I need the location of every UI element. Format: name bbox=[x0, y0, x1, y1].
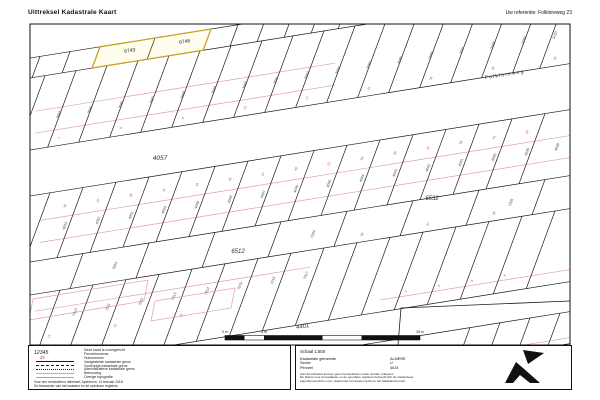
parcel-number-label: 3686 bbox=[118, 100, 125, 109]
parcel-boundary-line bbox=[230, 25, 238, 46]
info-field-value: 4024 bbox=[390, 366, 398, 370]
house-number-label: 57 bbox=[426, 145, 431, 150]
house-number-label: 45 bbox=[228, 177, 233, 182]
parcel-number-label: 3697 bbox=[459, 46, 466, 55]
parcel-boundary-line bbox=[48, 71, 76, 148]
parcel-number-label-large: 6512 bbox=[231, 249, 245, 255]
street-name-label: Folkloreweg bbox=[485, 69, 526, 81]
parcel-boundary-line bbox=[460, 222, 489, 300]
house-number-label: 14 bbox=[47, 334, 52, 339]
parcel-boundary-line bbox=[547, 313, 560, 347]
house-number-label: 47 bbox=[261, 172, 266, 177]
parcel-number-label: 3695 bbox=[397, 56, 404, 65]
parcel-boundary-line bbox=[268, 222, 281, 257]
parcel-boundary-line bbox=[255, 156, 281, 226]
parcel-number-label: 7012 bbox=[138, 297, 145, 306]
scale-bar-segment bbox=[264, 336, 323, 341]
parcel-number-label: 3684 bbox=[56, 110, 63, 119]
legend-line-sample bbox=[36, 373, 74, 374]
parcel-boundary-line bbox=[172, 51, 200, 128]
parcel-boundary-line bbox=[32, 56, 40, 77]
house-number-label: 65 bbox=[360, 232, 365, 237]
building-outline-line bbox=[380, 270, 570, 300]
house-number-label: 55 bbox=[393, 150, 398, 155]
parcel-boundary-line bbox=[288, 151, 314, 221]
highlighted-parcel-outline bbox=[92, 29, 211, 68]
parcel-boundary-line bbox=[420, 11, 448, 88]
legend-line-sample bbox=[36, 361, 74, 362]
building-outline-line bbox=[40, 158, 570, 243]
parcel-number-label: 7004 bbox=[310, 230, 317, 239]
parcel-boundary-line bbox=[365, 3, 373, 24]
parcel-boundary-line bbox=[473, 0, 481, 7]
parcel-number-label: 7014 bbox=[204, 287, 211, 296]
parcel-boundary-line bbox=[446, 0, 454, 11]
parcel-boundary-line bbox=[453, 124, 479, 194]
legend-box: Deze kaart is noordgericht12345Perceelnu… bbox=[28, 345, 291, 390]
parcel-number-label: 3698 bbox=[490, 41, 497, 50]
parcel-boundary-line bbox=[361, 237, 390, 315]
parcel-number-label: 3685 bbox=[87, 105, 94, 114]
disclaimer-line: eigendomsrechten voor, waaronder het aut… bbox=[300, 380, 505, 384]
parcel-number-label: 7003 bbox=[112, 261, 119, 270]
parcel-boundary-line bbox=[24, 193, 50, 263]
parcel-number-label: 7016 bbox=[270, 276, 277, 285]
legend-line-sample bbox=[36, 369, 74, 370]
parcel-number-label: 3687 bbox=[149, 95, 156, 104]
parcel-boundary-line bbox=[493, 216, 522, 294]
parcel-boundary-line bbox=[451, 6, 479, 83]
parcel-boundary-line bbox=[486, 119, 512, 189]
parcel-boundary-line bbox=[262, 253, 291, 331]
parcel-boundary-line bbox=[328, 243, 357, 321]
house-number-label: 67 bbox=[426, 221, 431, 226]
parcel-boundary-line bbox=[136, 243, 149, 278]
parcel-number-label: 7015 bbox=[237, 281, 244, 290]
building-outline-line bbox=[35, 267, 310, 311]
parcel-number-label: 3693 bbox=[335, 66, 342, 75]
parcel-number-label: 4038 bbox=[554, 143, 561, 152]
parcel-number-label: 3696 bbox=[428, 51, 435, 60]
parcel-number-label-large: 4057 bbox=[153, 155, 168, 162]
house-number-label: 37 bbox=[96, 198, 101, 203]
legend-sample-olive bbox=[34, 375, 84, 379]
parcel-boundary-line bbox=[358, 21, 386, 98]
building-outline-line bbox=[40, 136, 570, 221]
parcel-boundary-line bbox=[110, 61, 138, 138]
house-number-label: 17 bbox=[305, 96, 310, 101]
house-number-label: 41 bbox=[162, 187, 167, 192]
house-number-label: 53 bbox=[360, 156, 365, 161]
parcel-boundary-line bbox=[234, 41, 262, 118]
parcel-boundary-line bbox=[295, 248, 324, 326]
house-number-label: 25 bbox=[429, 76, 434, 81]
parcel-boundary-line bbox=[327, 26, 355, 103]
house-number-label: 6 bbox=[470, 279, 474, 282]
disclaimer-text: Aan dit uittreksel kunnen geen betrouwba… bbox=[300, 373, 505, 384]
parcel-boundary-line bbox=[17, 76, 45, 153]
house-number-label: 33 bbox=[553, 56, 558, 61]
house-number-label: 13 bbox=[243, 105, 248, 110]
legend-item-label: Overige topografie bbox=[84, 375, 113, 379]
building-outline-line bbox=[35, 63, 335, 111]
scale-bar-label: 25 m bbox=[416, 330, 424, 334]
map-info-box: Schaal 1:500 Kadastrale gemeenteALMERESe… bbox=[295, 345, 572, 390]
parcel-boundary-line bbox=[338, 7, 346, 28]
parcel-boundary-line bbox=[30, 0, 570, 78]
parcel-number-label: 3694 bbox=[366, 61, 373, 70]
parcel-boundary-line bbox=[79, 66, 107, 143]
parcel-boundary-line bbox=[163, 269, 192, 347]
house-number-label: 9 bbox=[181, 116, 185, 119]
legend-item: Overige topografie bbox=[34, 375, 287, 379]
map-polyline bbox=[29, 280, 148, 320]
parcel-boundary-line bbox=[57, 188, 83, 258]
parcel-boundary-line bbox=[466, 190, 479, 225]
parcel-number-label: 3699 bbox=[521, 36, 528, 45]
parcel-boundary-line bbox=[394, 232, 423, 310]
parcel-boundary-line bbox=[222, 161, 248, 231]
parcel-boundary-line bbox=[70, 254, 83, 289]
parcel-boundary-line bbox=[203, 46, 231, 123]
house-number-label: 8 bbox=[503, 274, 507, 277]
parcel-boundary-line bbox=[334, 211, 347, 246]
parcel-boundary-line bbox=[519, 114, 545, 184]
house-number-label: 1 bbox=[57, 136, 61, 139]
parcel-boundary-line bbox=[265, 36, 293, 113]
parcel-boundary-line bbox=[90, 182, 116, 252]
footnote-line: De bewaarder van het kadaster en de open… bbox=[34, 385, 287, 389]
parcel-boundary-line bbox=[400, 201, 413, 236]
scale-bar-segment bbox=[225, 336, 245, 341]
house-number-label: 39 bbox=[129, 193, 134, 198]
parcel-boundary-line bbox=[526, 211, 555, 289]
parcel-number-label: 3689 bbox=[211, 86, 218, 95]
cadastral-map: 3684368536863687368836893690369136923693… bbox=[0, 0, 600, 400]
parcel-number-label: 3688 bbox=[180, 91, 187, 100]
map-polyline bbox=[398, 301, 570, 345]
scale-bar-segment bbox=[245, 336, 265, 341]
parcel-number-label: 3690 bbox=[242, 81, 249, 90]
parcel-boundary-line bbox=[196, 264, 225, 342]
legend-line-sample bbox=[36, 365, 74, 366]
house-number-label: 5 bbox=[119, 126, 123, 129]
parcel-boundary-line bbox=[389, 16, 417, 93]
parcel-boundary-line bbox=[427, 227, 456, 305]
parcel-boundary-line bbox=[392, 0, 400, 20]
scale-bar-segment bbox=[323, 336, 362, 341]
legend-line-sample bbox=[36, 377, 74, 378]
house-number-label: 21 bbox=[367, 86, 372, 91]
house-number-label: 43 bbox=[195, 182, 200, 187]
legend-footnotes: Voor een eensluidend uittreksel, Apeldoo… bbox=[34, 381, 287, 389]
house-number-label: 63 bbox=[525, 129, 530, 134]
house-number-label: 69 bbox=[492, 211, 497, 216]
parcel-number-label: 7013 bbox=[171, 292, 178, 301]
parcel-boundary-line bbox=[284, 16, 292, 37]
parcel-boundary-line bbox=[189, 166, 215, 236]
parcel-boundary-line bbox=[202, 232, 215, 267]
map-content: 3684368536863687368836893690369136923693… bbox=[17, 0, 570, 400]
parcel-boundary-line bbox=[62, 52, 70, 73]
parcel-boundary-line bbox=[500, 0, 508, 3]
house-number-label: 59 bbox=[459, 140, 464, 145]
parcel-boundary-line bbox=[296, 31, 324, 108]
parcel-number-label: 3692 bbox=[304, 71, 311, 80]
parcel-number-label-large: 6532 bbox=[425, 196, 439, 202]
kadaster-logo-shape bbox=[523, 350, 544, 364]
parcel-boundary-line bbox=[419, 0, 427, 16]
parcel-number-label: 7017 bbox=[303, 271, 310, 280]
parcel-boundary-line bbox=[513, 0, 541, 73]
cadastral-extract-page: Uittreksel Kadastrale Kaart Uw referenti… bbox=[0, 0, 600, 400]
legend-rows: Deze kaart is noordgericht12345Perceelnu… bbox=[34, 348, 287, 379]
house-number-label: 2 bbox=[404, 290, 408, 293]
parcel-number-label: 7005 bbox=[508, 198, 515, 207]
house-number-label: 10 bbox=[179, 313, 184, 318]
map-polyline bbox=[151, 288, 235, 321]
parcel-boundary-line bbox=[387, 135, 413, 205]
parcel-boundary-line bbox=[123, 177, 149, 247]
scale-bar-label: 0 m bbox=[222, 330, 228, 334]
kadaster-logo bbox=[503, 350, 545, 384]
kadaster-logo-shape bbox=[505, 362, 540, 383]
house-number-label: 49 bbox=[294, 166, 299, 171]
house-number-label: 35 bbox=[63, 203, 68, 208]
parcel-boundary-line bbox=[156, 172, 182, 242]
scale-bar-label: 5 m bbox=[261, 330, 267, 334]
parcel-boundary-line bbox=[420, 129, 446, 199]
parcel-number-label: 7011 bbox=[105, 303, 112, 312]
house-number-label: 4 bbox=[437, 284, 441, 287]
info-field-label: Perceel bbox=[300, 366, 390, 370]
parcel-boundary-line bbox=[30, 110, 570, 196]
house-number-label: 61 bbox=[492, 135, 497, 140]
parcel-boundary-line bbox=[532, 180, 545, 215]
parcel-boundary-line bbox=[130, 274, 159, 352]
parcel-boundary-line bbox=[354, 140, 380, 210]
house-number-label: 51 bbox=[327, 161, 332, 166]
parcel-boundary-line bbox=[311, 12, 319, 33]
parcel-number-label: 3691 bbox=[273, 76, 280, 85]
house-number-label: 12 bbox=[113, 323, 118, 328]
parcel-boundary-line bbox=[321, 145, 347, 215]
house-number-label: 29 bbox=[491, 66, 496, 71]
parcel-boundary-line bbox=[482, 1, 510, 78]
parcel-boundary-line bbox=[229, 259, 258, 337]
scale-bar-segment bbox=[362, 336, 421, 341]
parcel-boundary-line bbox=[141, 56, 169, 133]
map-border bbox=[30, 24, 570, 345]
parcel-number-label-large: 4401 bbox=[296, 323, 310, 331]
